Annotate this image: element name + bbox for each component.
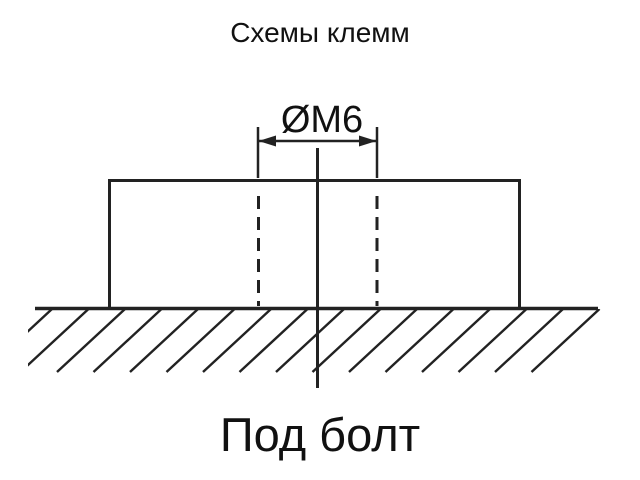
terminal-block-outline xyxy=(110,181,520,308)
arrow-left-icon xyxy=(259,136,277,147)
terminal-scheme-diagram: Схемы клемм ØM6 Под бо xyxy=(0,0,640,480)
diagram-caption: Под болт xyxy=(220,408,420,461)
diameter-label: ØM6 xyxy=(281,99,363,141)
surface-hatching xyxy=(0,309,600,372)
diagram-page: Схемы клемм ØM6 Под бо xyxy=(0,0,640,480)
diagram-title: Схемы клемм xyxy=(230,17,410,48)
